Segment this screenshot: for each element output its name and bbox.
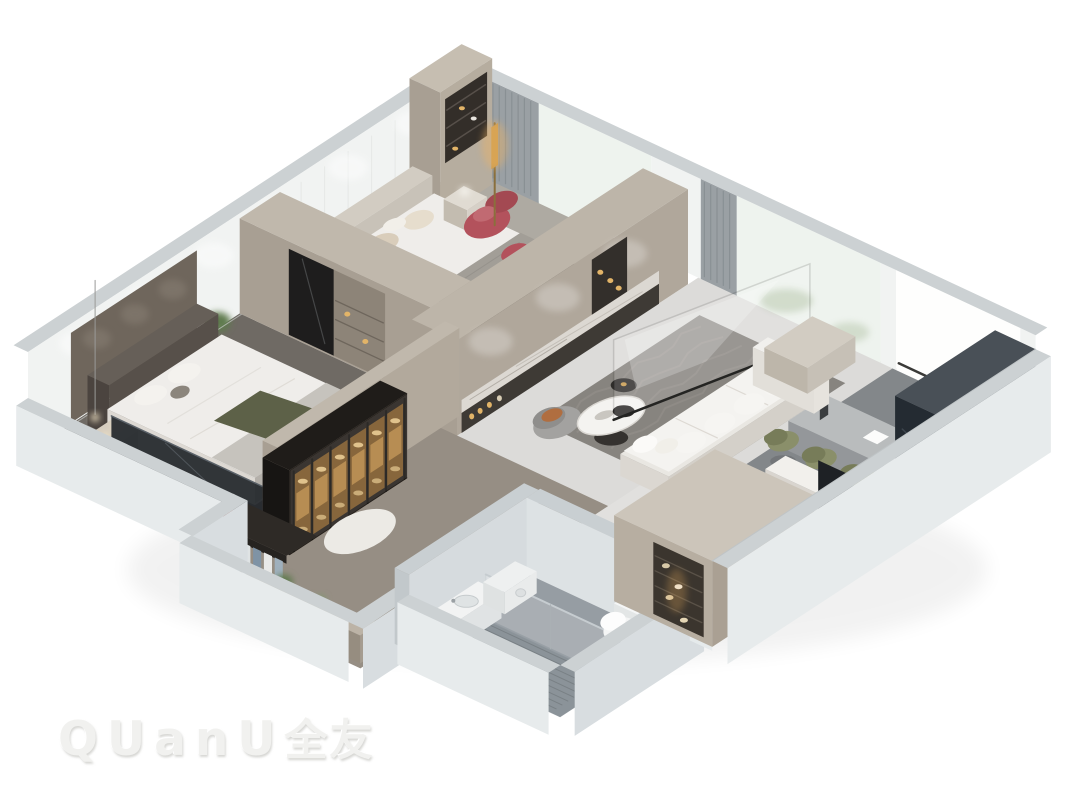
brand-watermark-cjk: 全友 (284, 716, 374, 766)
floorplan-3d-render: QUanU全友 (0, 0, 1080, 810)
pendant-bulb (91, 413, 99, 421)
brand-watermark: QUanU全友 (58, 706, 374, 768)
living-curtain (701, 179, 737, 296)
brand-watermark-latin: QUanU (58, 712, 284, 767)
sink-basin (454, 595, 478, 607)
washer-door (516, 589, 526, 597)
faucet (451, 599, 455, 603)
isometric-apartment-scene (0, 0, 1080, 810)
table-lamp (460, 188, 470, 196)
